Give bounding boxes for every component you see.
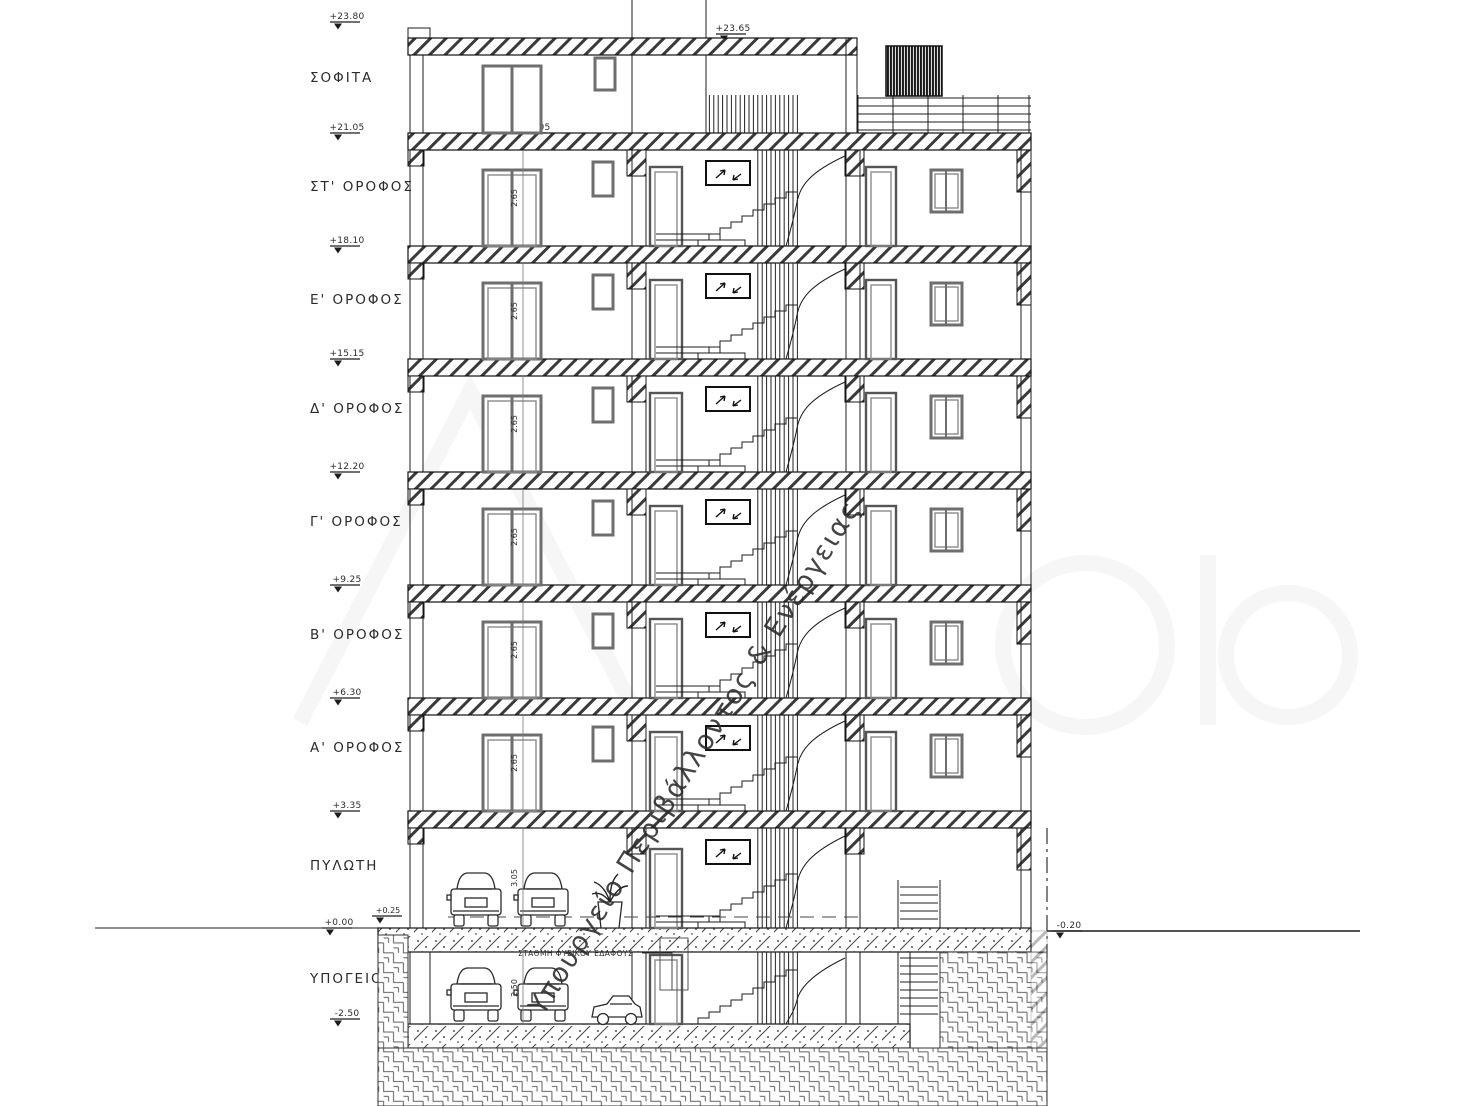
elev-right-ground: -0.20: [1057, 921, 1082, 931]
elev-0-00: +0.00: [324, 918, 353, 928]
elev-9-25: +9.25: [332, 575, 361, 585]
elev-3-35: +3.35: [332, 801, 361, 811]
floor-label-g: Γ' ΟΡΟΦΟΣ: [310, 514, 403, 530]
elev-6-30: +6.30: [332, 688, 361, 698]
car-icon: [447, 968, 501, 1021]
dim-pilotis: 3.05: [510, 869, 519, 887]
pilotis-level: 3.05: [408, 828, 1031, 928]
building-section-drawing: 2.65 ΣΟΦΙΤΑ ΣΤ' ΟΡΟΦΟΣ Ε' ΟΡΟΦΟΣ Δ' ΟΡΟΦ…: [0, 0, 1474, 1106]
floor-section-b: [408, 602, 1031, 698]
terrace-railing: [858, 95, 1031, 133]
floor-label-sofita: ΣΟΦΙΤΑ: [310, 70, 373, 86]
attic-stair-balustrade: [706, 95, 798, 133]
car-icon: [447, 873, 501, 926]
car-side-icon: [592, 996, 642, 1025]
floor-label-a: Α' ΟΡΟΦΟΣ: [310, 740, 404, 756]
elevation-markers: +23.80 +21.05 +18.10 +15.15 +12.20 +9.25…: [322, 12, 1082, 1027]
elev-minus-2-50: -2.50: [335, 1009, 360, 1019]
floor-label-d: Δ' ΟΡΟΦΟΣ: [310, 401, 404, 417]
elev-23-65: +23.65: [715, 24, 750, 34]
floor-label-piloti: ΠΥΛΩΤΗ: [310, 858, 378, 874]
basement-floor-slab: [408, 1024, 910, 1048]
elev-21-05: +21.05: [329, 123, 364, 133]
floor-label-e: Ε' ΟΡΟΦΟΣ: [310, 292, 404, 308]
floor-label-b: Β' ΟΡΟΦΟΣ: [310, 627, 404, 643]
floor-labels: ΣΟΦΙΤΑ ΣΤ' ΟΡΟΦΟΣ Ε' ΟΡΟΦΟΣ Δ' ΟΡΟΦΟΣ Γ'…: [309, 70, 414, 987]
floor-label-st: ΣΤ' ΟΡΟΦΟΣ: [310, 179, 414, 195]
ground-slab: [378, 928, 1031, 952]
elev-18-10: +18.10: [329, 236, 364, 246]
earth-hatching: [378, 931, 1047, 1106]
elev-15-15: +15.15: [329, 349, 364, 359]
floor-section-e: [408, 263, 1031, 359]
floor-label-ypogeio: ΥΠΟΓΕΙΟ: [309, 971, 384, 987]
roof-slab: [408, 38, 857, 55]
dim-basement: 2.50: [510, 979, 519, 997]
car-icon: [514, 873, 568, 926]
elev-12-20: +12.20: [329, 462, 364, 472]
floor-section-st: [408, 150, 1031, 246]
drawing-sheet: 2.65 ΣΟΦΙΤΑ ΣΤ' ΟΡΟΦΟΣ Ε' ΟΡΟΦΟΣ Δ' ΟΡΟΦ…: [0, 0, 1474, 1106]
chimney: [886, 46, 942, 96]
floor-section-g: [408, 489, 1031, 585]
floor-section-d: [408, 376, 1031, 472]
elev-0-25: +0.25: [376, 906, 401, 915]
elev-23-80: +23.80: [329, 12, 364, 22]
